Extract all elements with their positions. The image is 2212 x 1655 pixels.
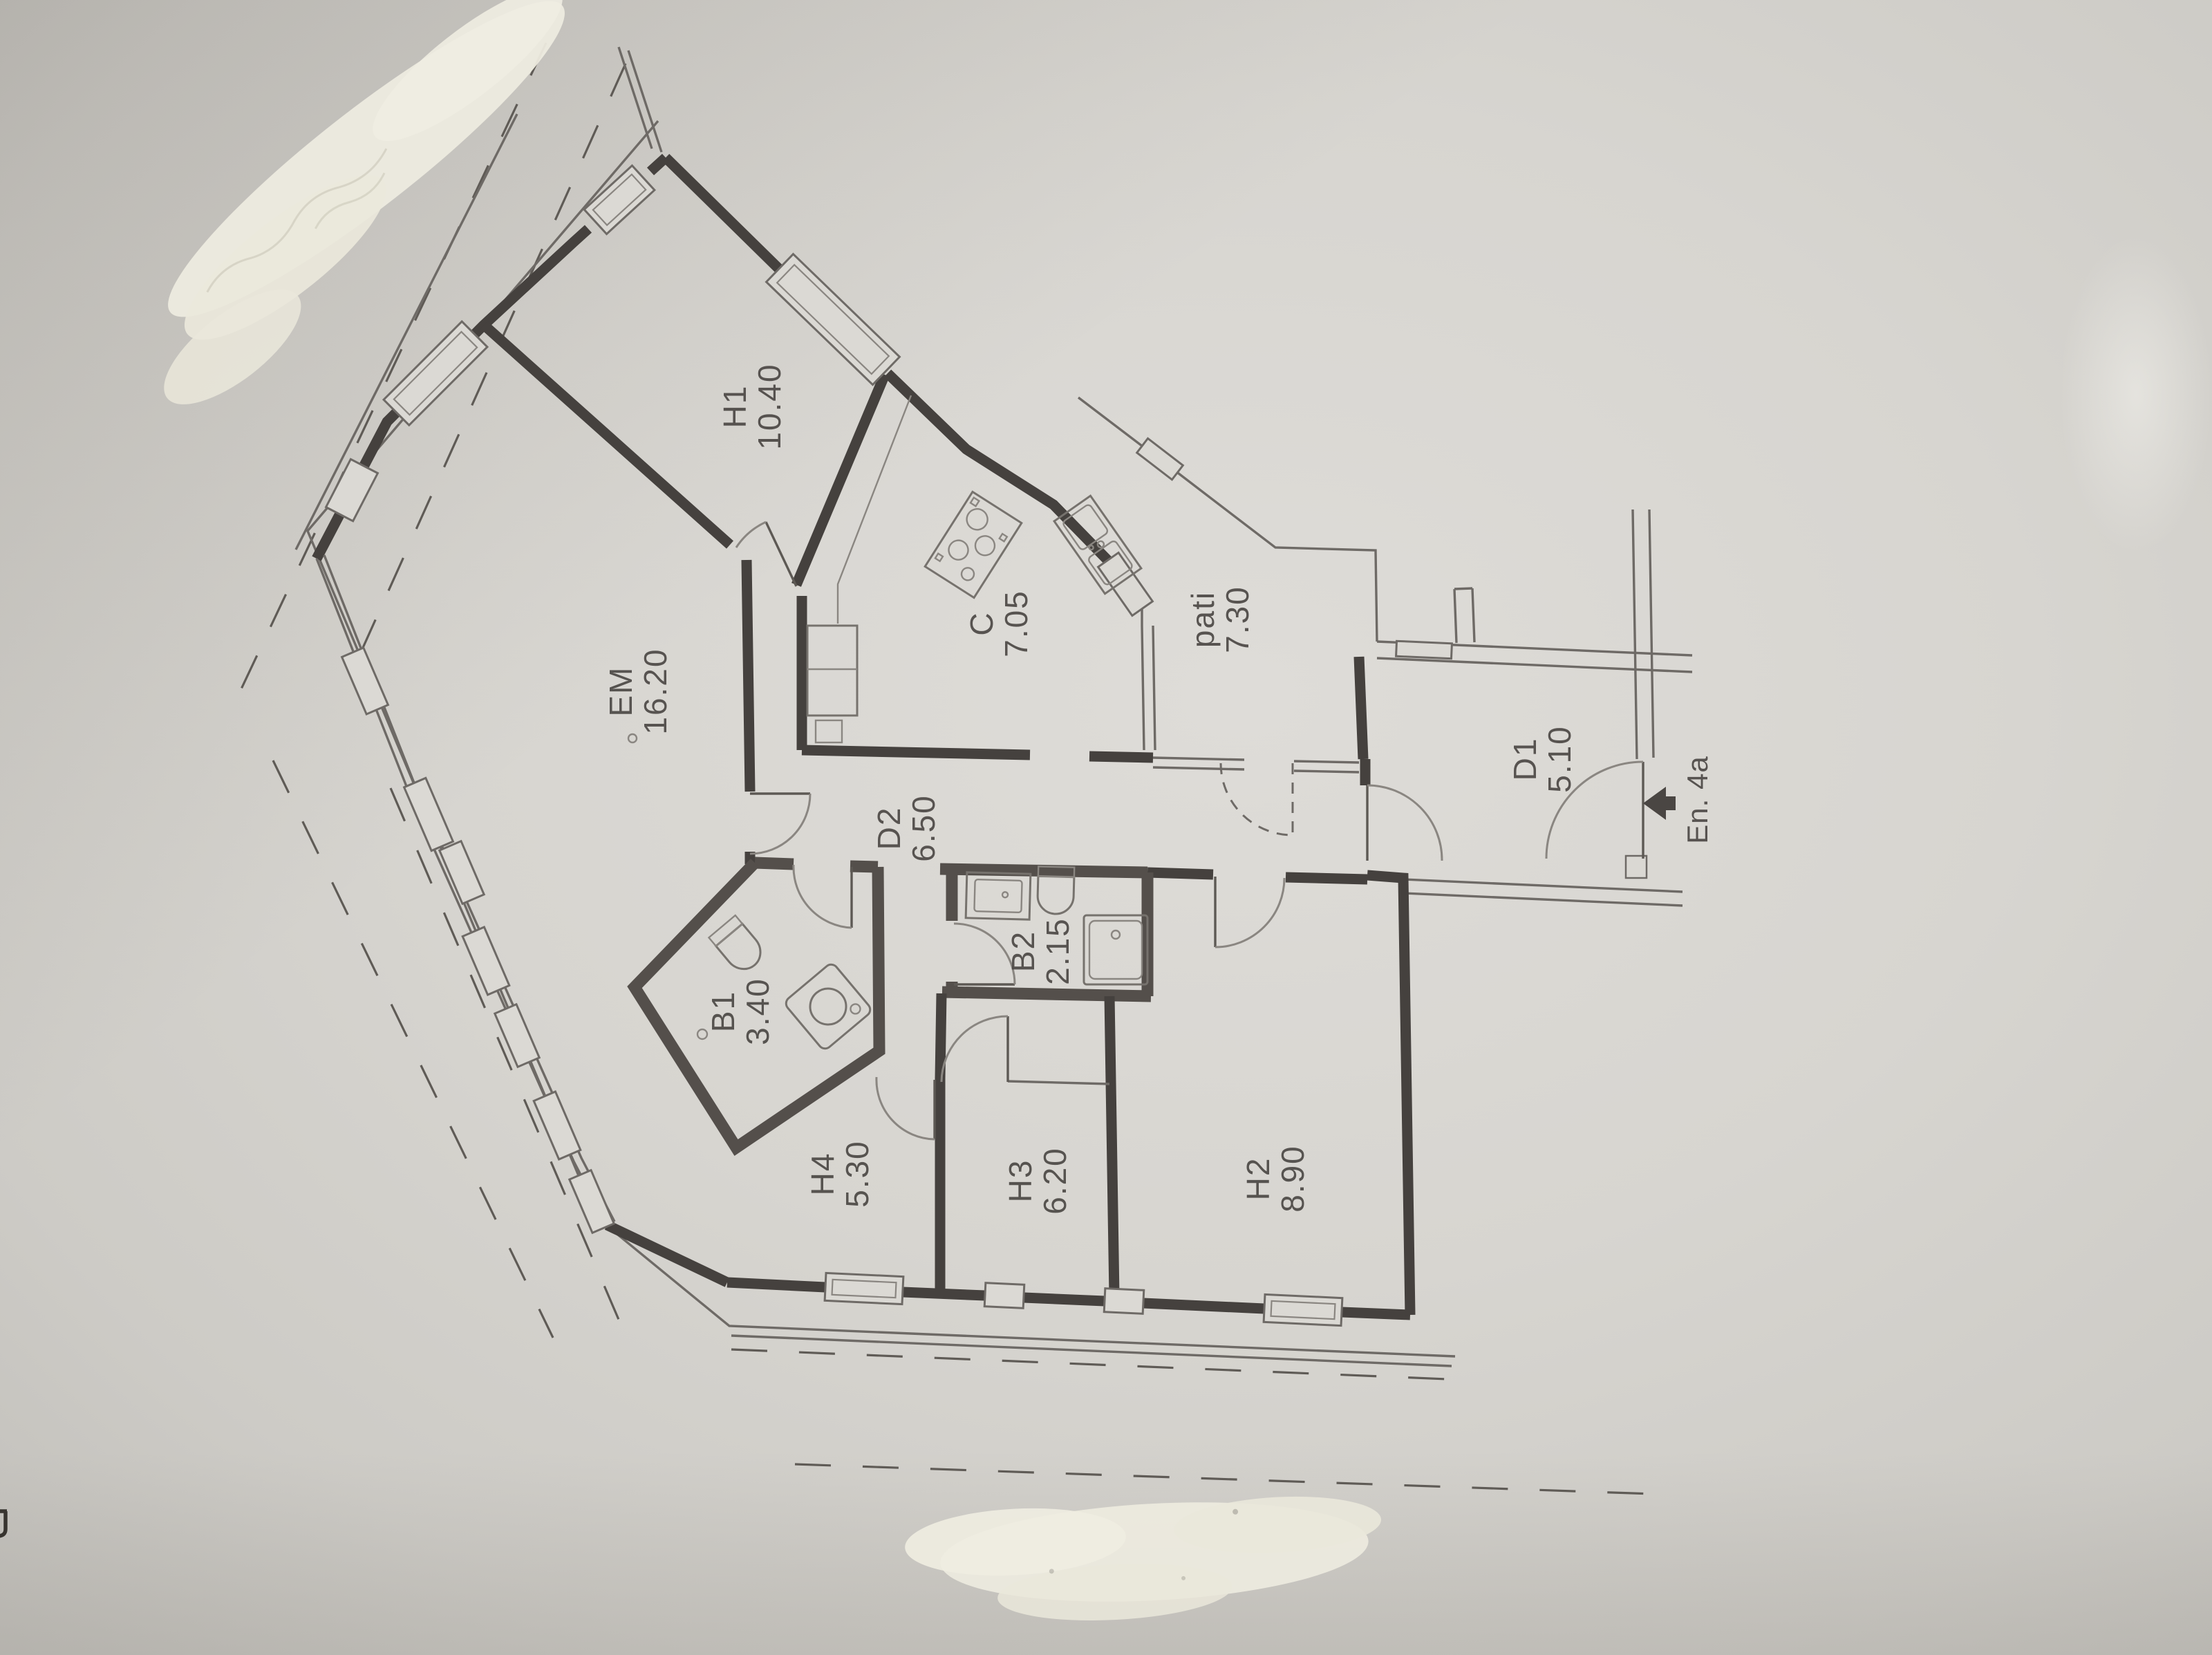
room-area: 5.30 bbox=[839, 1140, 875, 1208]
room-area: 10.40 bbox=[751, 363, 787, 449]
room-code: C bbox=[964, 611, 1000, 635]
room-area: 6.20 bbox=[1037, 1147, 1073, 1215]
room-area: 7.05 bbox=[998, 590, 1034, 657]
entrance-label: En. 4a bbox=[1681, 756, 1714, 843]
room-code: H2 bbox=[1240, 1157, 1276, 1201]
room-label-pati: pati 7.30 bbox=[1185, 586, 1255, 653]
room-code: H1 bbox=[717, 385, 753, 429]
room-code: H3 bbox=[1002, 1159, 1038, 1203]
photo-of-floor-plan: H1 10.40 EM 16.20 C 7.05 pati 7.30 D1 5.… bbox=[0, 0, 2212, 1655]
room-code: B1 bbox=[705, 991, 741, 1032]
room-area: 6.50 bbox=[906, 794, 941, 862]
paper-sheen bbox=[2060, 235, 2212, 553]
floor-plan-canvas: H1 10.40 EM 16.20 C 7.05 pati 7.30 D1 5.… bbox=[0, 0, 2212, 1655]
room-area: 2.15 bbox=[1040, 917, 1076, 985]
room-area: 16.20 bbox=[637, 648, 673, 734]
room-code: D1 bbox=[1507, 738, 1543, 781]
room-area: 8.90 bbox=[1275, 1145, 1311, 1213]
room-code: B2 bbox=[1005, 931, 1041, 972]
room-area: 7.30 bbox=[1219, 586, 1255, 653]
room-code: EM bbox=[603, 666, 639, 717]
room-code: pati bbox=[1185, 591, 1221, 648]
room-code: D2 bbox=[871, 807, 907, 850]
room-area: 5.10 bbox=[1541, 725, 1577, 793]
entrance-text: En. 4a bbox=[1681, 756, 1714, 843]
room-code: H4 bbox=[805, 1152, 841, 1196]
room-area: 3.40 bbox=[740, 978, 776, 1045]
